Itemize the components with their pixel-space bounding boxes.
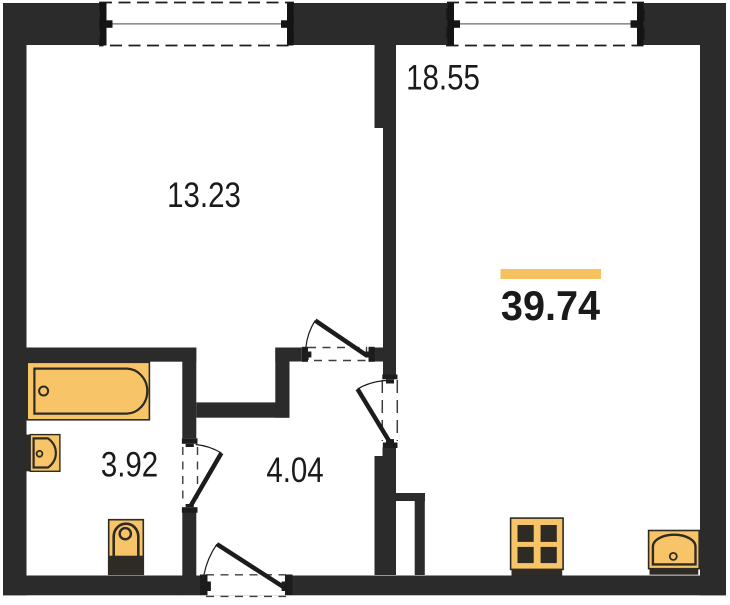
svg-text:13.23: 13.23 [167,174,241,214]
svg-text:18.55: 18.55 [406,57,480,97]
svg-text:3.92: 3.92 [101,444,158,484]
svg-text:39.74: 39.74 [501,282,601,329]
svg-text:4.04: 4.04 [266,449,323,489]
